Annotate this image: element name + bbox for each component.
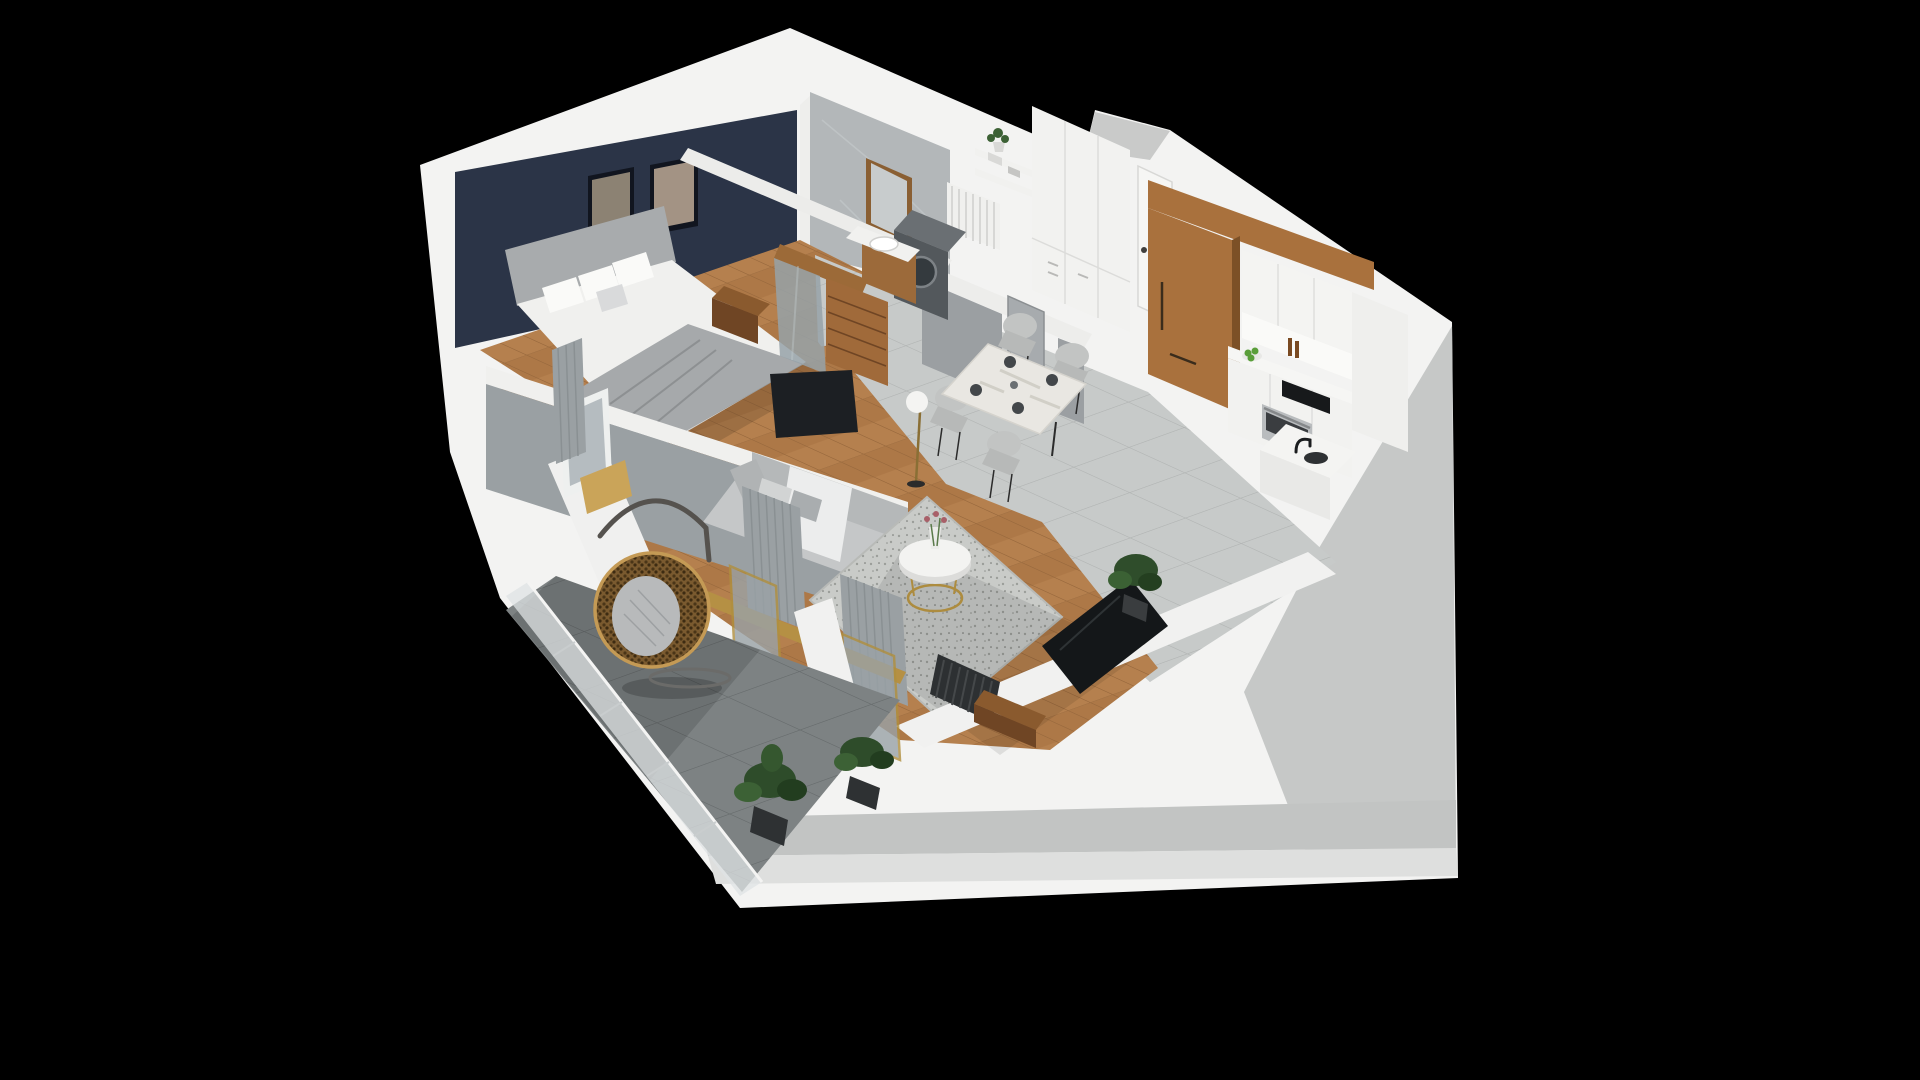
apartment-3d-render: 3D apartment floor plan render — [0, 0, 1920, 1080]
balcony-plant-1c — [777, 779, 807, 801]
dining-centerpiece-dot — [1010, 381, 1018, 389]
dining-plates-dot — [1004, 356, 1016, 368]
closet-glass-door — [774, 258, 826, 374]
balcony-plant-1d — [761, 744, 783, 772]
balcony-plant-2b — [834, 753, 858, 771]
sink-basin — [1304, 452, 1328, 464]
living-plant-leaf-2 — [1108, 571, 1132, 589]
floor-lamp-globe — [906, 391, 928, 413]
floor-plan-canvas — [0, 0, 1920, 1080]
vase-flowers-dot — [941, 517, 947, 523]
vase-flowers-dot — [924, 516, 930, 522]
bedroom-tv — [770, 370, 858, 438]
shelf-plant-dot — [987, 134, 995, 142]
egg-chair-shadow — [622, 677, 722, 699]
vase-flowers-dot — [933, 511, 939, 517]
dining-centerpiece — [1010, 381, 1018, 389]
balcony-plant-1b — [734, 782, 762, 802]
dining-plates-dot — [970, 384, 982, 396]
entry-door-handle-dot — [1141, 247, 1147, 253]
living-plant-leaf-3 — [1138, 573, 1162, 591]
vanity-sink — [870, 237, 898, 251]
shelf-plant-pot — [993, 142, 1005, 152]
kitchen-side-panel — [1352, 292, 1408, 452]
entry-door-handle — [1141, 247, 1147, 253]
dining-plates-dot — [1012, 402, 1024, 414]
pepper-mill-2 — [1295, 341, 1299, 358]
green-apples-dot — [1252, 348, 1259, 355]
shelf-plant-dot — [1001, 135, 1009, 143]
green-apples-dot — [1248, 355, 1255, 362]
floor-lamp-base — [907, 481, 925, 488]
dining-plates-dot — [1046, 374, 1058, 386]
balcony-plant-2c — [870, 751, 894, 769]
pepper-mill-1 — [1288, 338, 1292, 356]
